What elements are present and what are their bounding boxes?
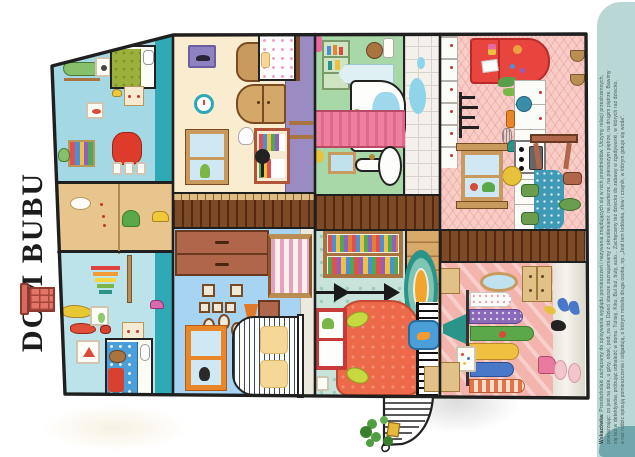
xylophone-yellow-bar xyxy=(95,278,116,282)
window-plant xyxy=(200,164,210,178)
xylophone-teal-bar xyxy=(99,290,112,294)
dresser-line xyxy=(177,253,267,255)
shelf-line-1 xyxy=(324,56,348,58)
attic-column xyxy=(50,33,175,398)
fridge-note xyxy=(481,59,499,73)
wardrobe-knob-1 xyxy=(257,101,260,104)
pear-picture xyxy=(90,306,109,326)
cushion-2 xyxy=(124,162,134,175)
books-row-2 xyxy=(328,257,398,274)
striped-bed xyxy=(232,316,302,396)
coat-flower xyxy=(499,331,506,338)
orange-window xyxy=(186,326,226,390)
burner-1 xyxy=(519,147,524,152)
cushion-1 xyxy=(112,162,122,175)
cabinet-divider-2 xyxy=(536,267,538,300)
window-bar-h xyxy=(190,157,224,160)
lion-magnet xyxy=(513,45,522,54)
armchair-pillow-2 xyxy=(344,365,371,387)
dresser xyxy=(175,230,269,276)
green-bed xyxy=(110,45,156,89)
wall-shelf-b xyxy=(289,135,313,139)
tree-toy xyxy=(122,210,140,227)
floor-band-bedroom xyxy=(173,200,315,228)
attic-storage-band xyxy=(50,182,175,252)
pink-bed xyxy=(258,34,296,81)
bottle-3 xyxy=(339,47,343,55)
mouse-toy xyxy=(58,148,70,162)
paper-stain xyxy=(40,404,190,452)
oil-bottle xyxy=(506,110,515,128)
bug-picture xyxy=(95,57,111,77)
coat-blue xyxy=(470,362,514,377)
sink-faucet xyxy=(369,154,375,160)
bunny-slipper-1 xyxy=(554,360,567,380)
sill-turtle xyxy=(482,182,495,192)
hall-cabinet-2 xyxy=(522,266,552,302)
kettle xyxy=(502,166,522,186)
bedroom-window xyxy=(186,130,228,184)
wardrobe xyxy=(236,84,286,124)
chair-2-seat xyxy=(521,212,539,225)
cat-picture xyxy=(188,45,216,68)
shampoo-bottle xyxy=(383,38,394,58)
scanned-page: DOM BUBU xyxy=(0,0,635,457)
kitchen-window-bar xyxy=(465,175,499,178)
coat-striped xyxy=(469,379,525,393)
teddy-on-bed xyxy=(109,350,126,363)
confetti-3 xyxy=(463,362,466,365)
chair-1-seat xyxy=(521,184,539,197)
bug-mark xyxy=(101,65,107,71)
vent-fan xyxy=(516,96,532,112)
wall-shelf-a xyxy=(289,121,313,125)
boat-mark xyxy=(83,347,95,357)
hint-text: Wskazówka: Przedszkolaki zachęcamy do op… xyxy=(599,10,633,444)
dollhouse xyxy=(0,0,635,457)
wardrobe-divider xyxy=(262,86,264,122)
xylophone-orange-bar xyxy=(93,272,118,276)
red-blanket-end xyxy=(108,368,124,392)
wooden-pole xyxy=(127,255,132,303)
toy-phone xyxy=(100,325,111,334)
water-splash-big xyxy=(409,78,426,114)
kitchen-window xyxy=(461,151,503,201)
sink-bowl xyxy=(378,146,402,186)
fish-mark xyxy=(92,109,101,114)
red-shelf-line xyxy=(319,338,343,341)
bedroom-baseboard xyxy=(173,193,315,200)
coat-purple xyxy=(469,309,523,324)
photo-frame-1 xyxy=(202,284,215,297)
shelf-plant xyxy=(322,318,334,329)
bookshelf xyxy=(323,230,403,278)
fridge-divider xyxy=(498,40,500,82)
coat-green xyxy=(470,326,534,341)
ground-shadow xyxy=(430,398,520,434)
chair-3 xyxy=(563,172,582,185)
shower-curtain xyxy=(315,110,405,148)
toy-plane-yellow xyxy=(62,305,92,318)
pink-toy-car xyxy=(150,300,164,309)
penguin-toy xyxy=(199,367,210,381)
pink-bed-headboard xyxy=(236,42,260,82)
coat-white-floral xyxy=(470,292,512,307)
office-chair xyxy=(255,149,270,164)
oval-plate xyxy=(70,197,91,210)
armchair-pillow-1 xyxy=(344,309,371,331)
hint-line-1: Wskazówka: Przedszkolaki zachęcamy do op… xyxy=(599,10,606,444)
blue-bed xyxy=(105,338,153,396)
pendant-lamp-pole xyxy=(315,291,393,294)
dresser-handle-2 xyxy=(215,263,229,266)
photo-frame-2 xyxy=(230,284,243,297)
toothbrush-cup xyxy=(315,36,322,52)
red-teddy-bear xyxy=(112,132,142,165)
small-cabinet xyxy=(124,86,144,106)
cat-silhouette xyxy=(196,55,210,61)
icecream-magnet xyxy=(488,44,496,55)
clock-hand xyxy=(203,100,205,105)
orange-window-bar xyxy=(191,356,221,360)
utensil-1 xyxy=(462,96,475,99)
green-blanket xyxy=(112,49,141,87)
office-chair-base xyxy=(261,163,264,177)
crocodile-shelf xyxy=(64,78,100,81)
wardrobe-knob-2 xyxy=(267,101,270,104)
bed-headboard-white xyxy=(297,314,304,398)
bookshelf-shelf xyxy=(327,253,399,256)
bed-pillow-2 xyxy=(140,344,150,361)
bunny-slipper-2 xyxy=(568,363,581,383)
black-shoe xyxy=(551,320,566,331)
yellow-toy-car xyxy=(152,211,169,222)
hint-line-4: a raz rodzic opisują pomieszczenia i odg… xyxy=(620,10,627,444)
floor-band-kitchen xyxy=(440,230,585,262)
goldfish xyxy=(417,332,430,340)
fish-picture xyxy=(86,102,104,119)
side-cabinet xyxy=(424,366,440,392)
water-splash-small xyxy=(417,57,425,69)
shower-head xyxy=(366,42,383,59)
crib xyxy=(268,234,312,298)
floor-band-bathroom xyxy=(315,195,440,230)
hall-cabinet-1 xyxy=(440,268,460,294)
hall-mirror xyxy=(480,272,518,292)
magnet-dot-2 xyxy=(520,68,525,73)
pink-bed-footboard xyxy=(296,35,300,81)
cushion-3 xyxy=(136,162,146,175)
coat-yellow xyxy=(469,343,519,360)
duck-toy xyxy=(112,89,122,97)
kitchen-window-frame-top xyxy=(456,143,508,151)
sailboat-picture xyxy=(76,340,100,364)
cabinet-divider xyxy=(118,184,120,254)
red-shelf xyxy=(315,308,347,370)
goose-toy xyxy=(238,127,254,145)
hall-cabinet-3 xyxy=(440,362,460,392)
toy-shelf xyxy=(68,140,95,167)
mini-book xyxy=(316,376,329,391)
bathroom-tiles xyxy=(403,33,440,195)
utensil-4 xyxy=(462,126,479,129)
bottle-4 xyxy=(328,61,332,70)
fish-tank xyxy=(408,320,440,350)
photo-frame-5 xyxy=(225,302,236,313)
photo-frame-3 xyxy=(199,302,210,313)
kitchen-table-top xyxy=(530,134,578,143)
burner-2 xyxy=(519,157,524,162)
utensil-3 xyxy=(462,116,475,119)
hint-label: Wskazówka: xyxy=(599,413,605,444)
wall-clock xyxy=(194,94,214,114)
bed-pillow-yellow-2 xyxy=(260,360,288,388)
sill-flower xyxy=(470,183,478,191)
pear-mark xyxy=(98,313,105,323)
hint-line-3: się też w detektywów, próbując odnaleźć … xyxy=(613,10,620,444)
armchair xyxy=(336,300,420,396)
photo-frame-4 xyxy=(212,302,223,313)
pink-pillow xyxy=(261,52,270,68)
confetti-2 xyxy=(467,357,470,360)
bottle-1 xyxy=(327,46,331,55)
dresser-handle-1 xyxy=(215,241,229,244)
bed-pillow xyxy=(143,50,154,65)
xylophone-green-bar xyxy=(97,284,114,288)
green-stool xyxy=(559,198,581,211)
books-row-1 xyxy=(328,235,398,252)
confetti-1 xyxy=(461,353,464,356)
bottle-5 xyxy=(335,60,340,70)
bottle-2 xyxy=(333,45,337,55)
utensil-2 xyxy=(462,106,478,109)
xylophone-red-bar xyxy=(91,266,120,270)
magnet-dot-1 xyxy=(510,64,515,69)
bathroom-mirror xyxy=(328,152,356,174)
kitchen-window-frame-bottom xyxy=(456,201,508,209)
bed-pillow-yellow-1 xyxy=(260,326,288,354)
hint-line-2: powtarzając: co jest na dole, u góry, ob… xyxy=(606,10,613,444)
